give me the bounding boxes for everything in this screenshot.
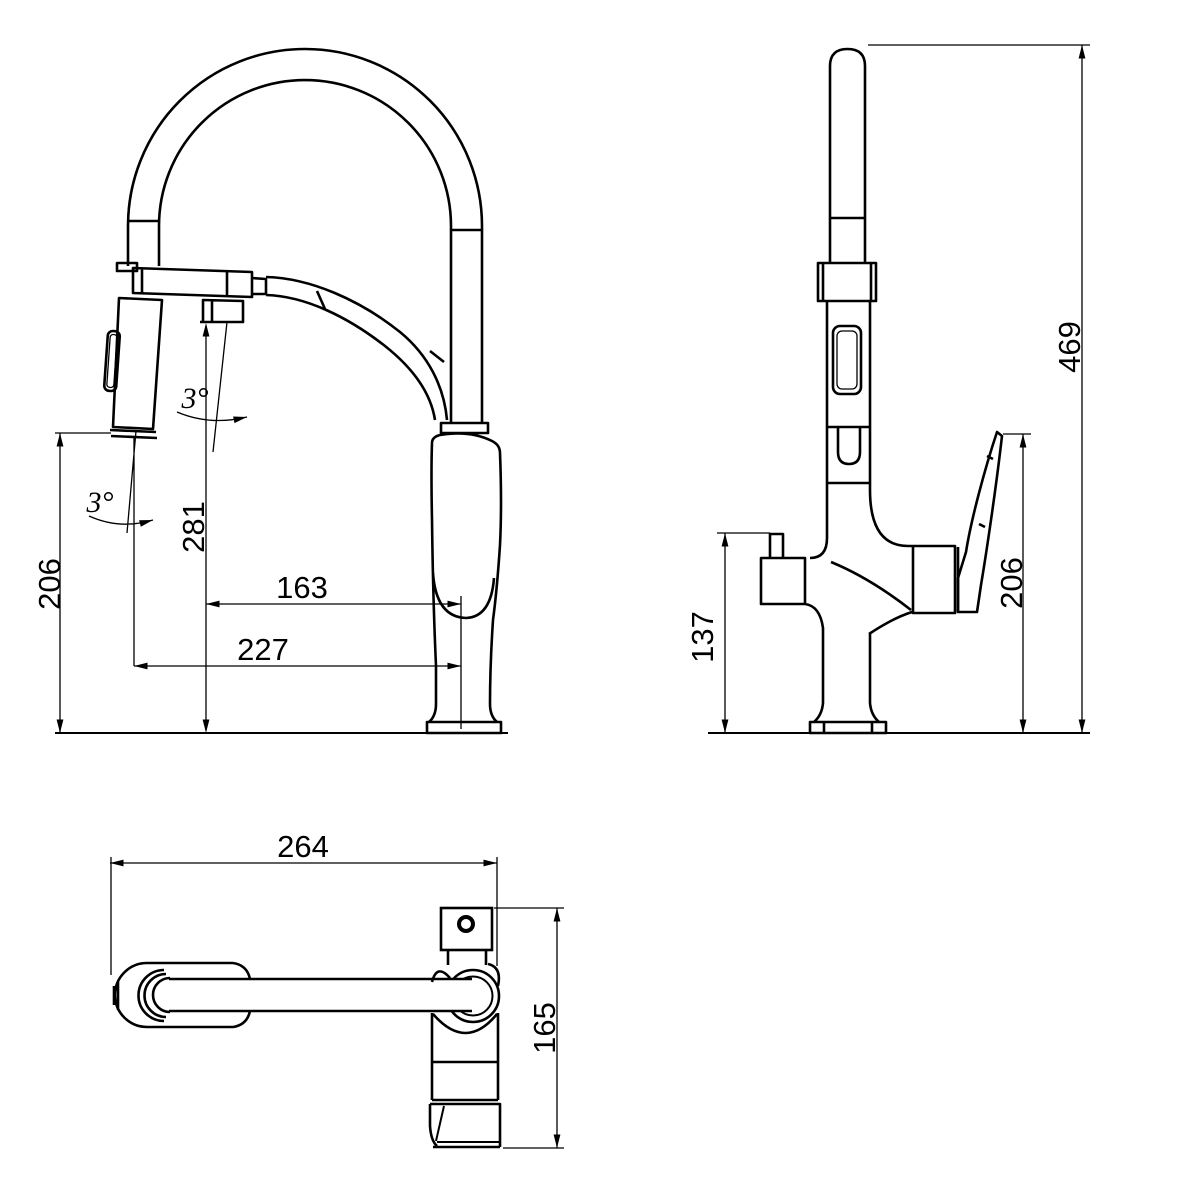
spray-holder — [117, 263, 266, 322]
dim-front-outlet-height: 206 — [32, 558, 67, 610]
top-spout-bar-fill — [169, 980, 472, 1010]
hose — [266, 277, 447, 420]
dim-front-spray-offset: 227 — [237, 632, 289, 667]
side-collar — [818, 263, 876, 301]
dim-side-bracket-height: 137 — [685, 611, 720, 663]
top-view: 264 165 — [110, 829, 564, 1148]
drawing-page: 206 281 163 227 3° 3° 469 — [0, 0, 1200, 1200]
top-view-geometry — [114, 908, 500, 1147]
side-view: 469 206 137 — [685, 45, 1090, 733]
front-view: 206 281 163 227 3° 3° — [32, 49, 508, 733]
front-view-geometry — [104, 49, 501, 733]
side-spray-button-inner — [837, 331, 857, 389]
side-dimension-lines — [717, 45, 1090, 733]
dim-side-handle-height: 206 — [994, 557, 1029, 609]
technical-drawing-canvas: 206 281 163 227 3° 3° 469 — [0, 0, 1200, 1200]
dim-front-hose-drop: 281 — [176, 501, 211, 553]
dim-front-hose-angle: 3° — [181, 382, 209, 415]
dim-top-body-depth: 165 — [527, 1002, 562, 1054]
side-view-geometry — [761, 49, 1002, 733]
faucet-body — [427, 423, 501, 733]
side-view-dimensions: 469 206 137 — [685, 45, 1090, 733]
dim-top-spout-reach: 264 — [277, 829, 329, 864]
dim-front-spout-offset: 163 — [276, 570, 328, 605]
top-handle-detail — [436, 1106, 500, 1142]
side-body — [761, 427, 958, 733]
dim-side-total-height: 469 — [1052, 321, 1087, 373]
dim-front-spray-angle: 3° — [86, 486, 114, 519]
side-spout-rod — [830, 49, 865, 263]
